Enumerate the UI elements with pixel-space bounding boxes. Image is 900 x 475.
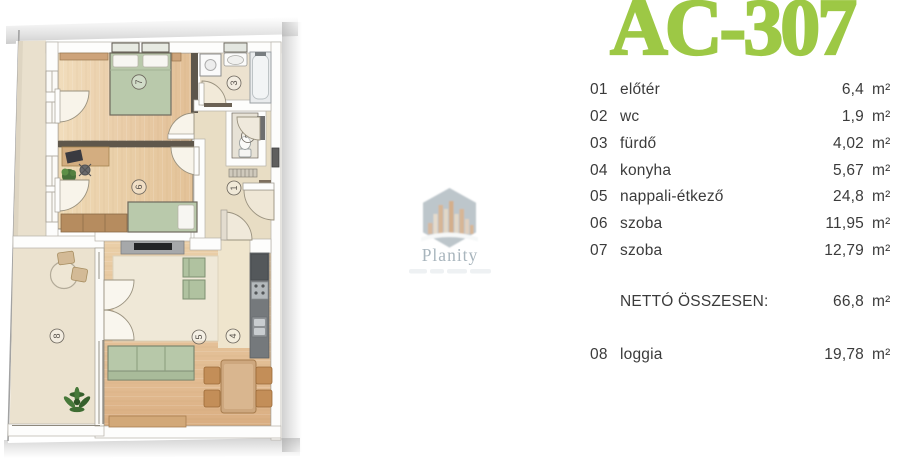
svg-text:4: 4 [228,333,238,338]
svg-text:8: 8 [52,333,62,338]
svg-text:5: 5 [194,334,204,339]
